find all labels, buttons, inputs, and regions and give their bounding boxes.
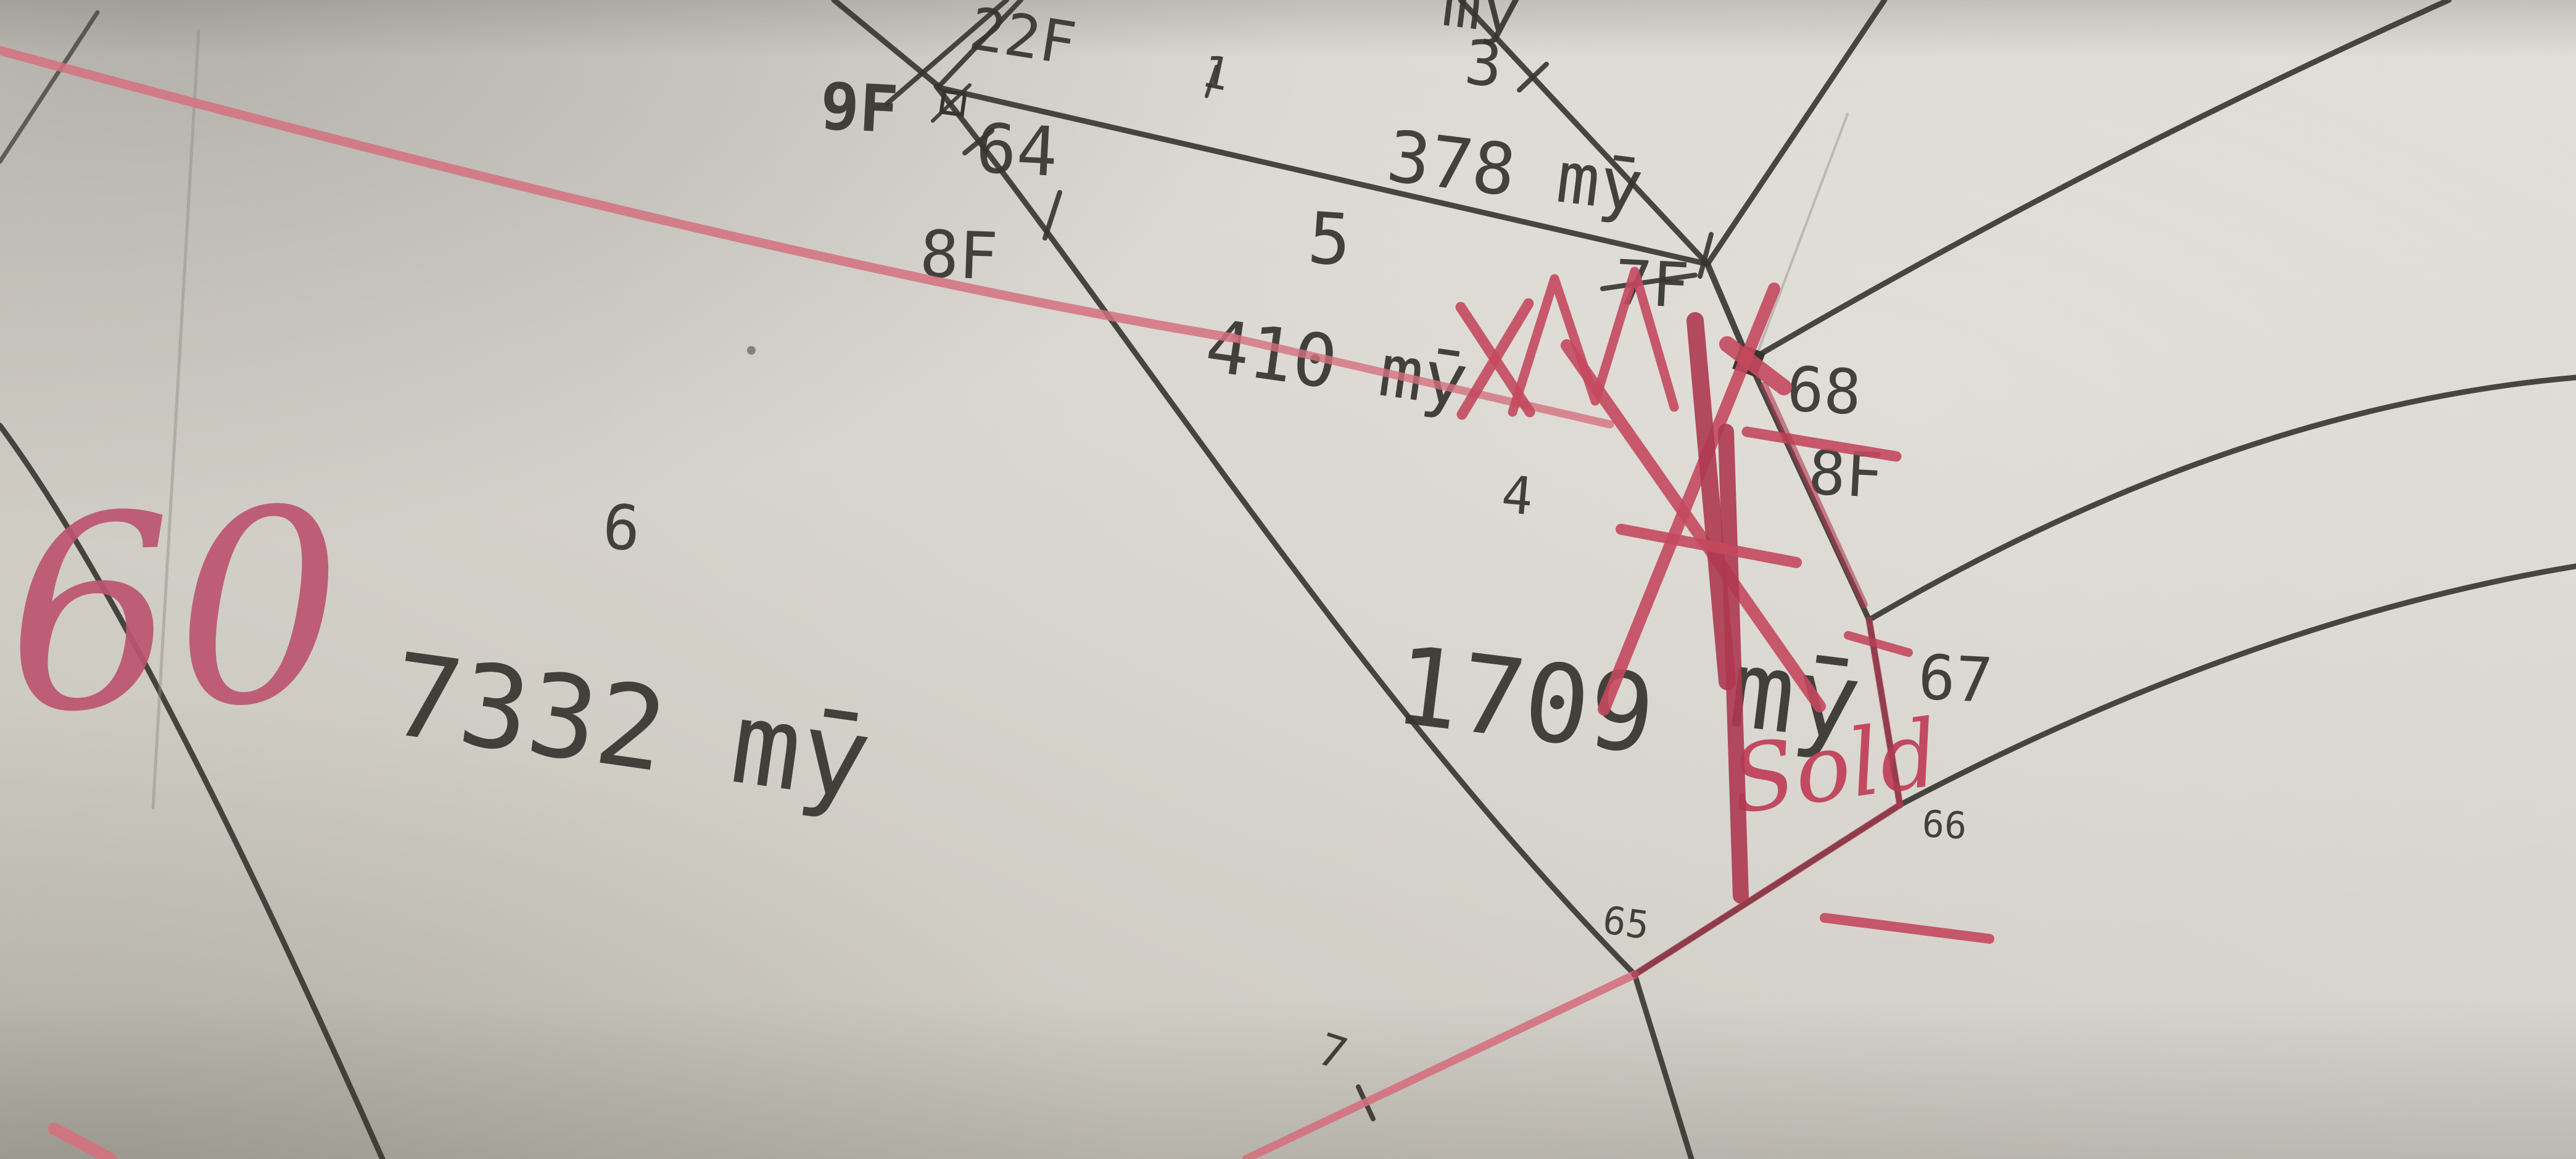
label-6: 6	[600, 490, 642, 565]
label-64: 64	[974, 109, 1060, 192]
label-60: 60	[1, 452, 349, 772]
label-65: 65	[1600, 897, 1652, 949]
photographed-map: 22F9F648F1mȳ3378 mȳ5410 mȳ7F688F67666576…	[0, 0, 2576, 1159]
label-68: 68	[1785, 353, 1863, 429]
label-5: 5	[1305, 197, 1353, 283]
label-9f: 9F	[819, 68, 901, 147]
label-66: 66	[1921, 802, 1968, 848]
label-3: 3	[1462, 26, 1505, 101]
map-svg: 22F9F648F1mȳ3378 mȳ5410 mȳ7F688F67666576…	[0, 0, 2576, 1159]
label-4: 4	[1499, 464, 1535, 527]
paper-dot	[747, 346, 756, 355]
paper-shade-top	[0, 0, 2576, 1159]
